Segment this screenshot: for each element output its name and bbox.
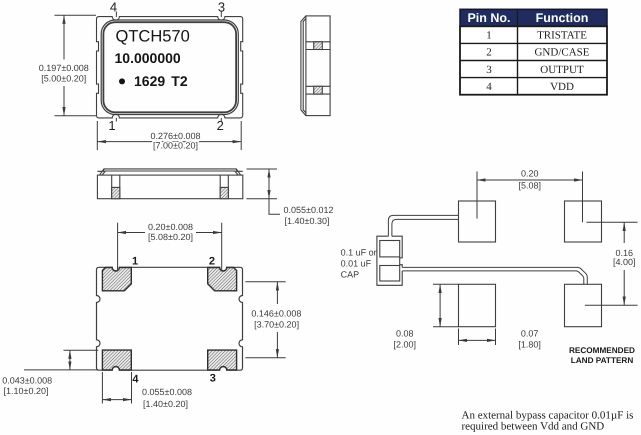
svg-text:1: 1 <box>486 30 492 42</box>
svg-text:[3.70±0.20]: [3.70±0.20] <box>254 319 299 329</box>
svg-text:[7.00±0.20]: [7.00±0.20] <box>153 141 198 151</box>
svg-text:4: 4 <box>132 373 139 385</box>
svg-text:0.08: 0.08 <box>396 329 414 339</box>
svg-text:[1.40±0.20]: [1.40±0.20] <box>143 399 188 409</box>
svg-text:0.146±0.008: 0.146±0.008 <box>251 309 301 319</box>
svg-text:GND/CASE: GND/CASE <box>534 47 589 59</box>
svg-text:0.20: 0.20 <box>521 169 539 179</box>
svg-text:0.20±0.008: 0.20±0.008 <box>148 222 193 232</box>
svg-text:[5.00±0.20]: [5.00±0.20] <box>41 74 86 84</box>
svg-text:[2.00]: [2.00] <box>394 339 417 349</box>
svg-text:10.000000: 10.000000 <box>115 50 181 66</box>
svg-text:Function: Function <box>536 11 589 25</box>
svg-text:0.055±0.012: 0.055±0.012 <box>284 205 334 215</box>
svg-text:[5.08±0.20]: [5.08±0.20] <box>148 232 193 242</box>
svg-text:2: 2 <box>209 256 215 268</box>
svg-text:2: 2 <box>486 47 492 59</box>
svg-text:[4.00]: [4.00] <box>613 257 636 267</box>
svg-text:0.055±0.008: 0.055±0.008 <box>142 387 192 397</box>
svg-text:TRISTATE: TRISTATE <box>537 30 587 42</box>
svg-text:1: 1 <box>132 256 138 268</box>
svg-text:required between Vdd and GND: required between Vdd and GND <box>462 421 605 433</box>
svg-text:OUTPUT: OUTPUT <box>540 64 584 76</box>
svg-text:Pin No.: Pin No. <box>467 11 510 25</box>
svg-text:0.01 uF: 0.01 uF <box>341 259 372 269</box>
svg-text:2: 2 <box>217 118 224 133</box>
svg-text:3: 3 <box>210 373 216 385</box>
svg-text:[1.80]: [1.80] <box>518 339 541 349</box>
svg-text:QTCH570: QTCH570 <box>116 28 190 46</box>
svg-text:1629: 1629 <box>134 73 165 89</box>
svg-text:[5.08]: [5.08] <box>519 180 542 190</box>
svg-text:RECOMMENDED: RECOMMENDED <box>569 346 635 355</box>
svg-text:4: 4 <box>486 81 492 93</box>
svg-text:LAND PATTERN: LAND PATTERN <box>571 356 634 365</box>
svg-text:1: 1 <box>108 118 115 133</box>
svg-text:VDD: VDD <box>550 81 574 93</box>
svg-text:3: 3 <box>486 64 492 76</box>
svg-text:T2: T2 <box>171 73 188 89</box>
svg-text:CAP: CAP <box>341 269 360 279</box>
svg-text:0.197±0.008: 0.197±0.008 <box>39 63 89 73</box>
svg-text:[1.40±0.30]: [1.40±0.30] <box>285 216 330 226</box>
svg-text:[1.10±0.20]: [1.10±0.20] <box>4 386 49 396</box>
svg-text:0.07: 0.07 <box>521 329 539 339</box>
svg-text:0.1 uF or: 0.1 uF or <box>341 247 377 257</box>
svg-text:0.276±0.008: 0.276±0.008 <box>151 131 201 141</box>
svg-text:0.043±0.008: 0.043±0.008 <box>2 375 52 385</box>
